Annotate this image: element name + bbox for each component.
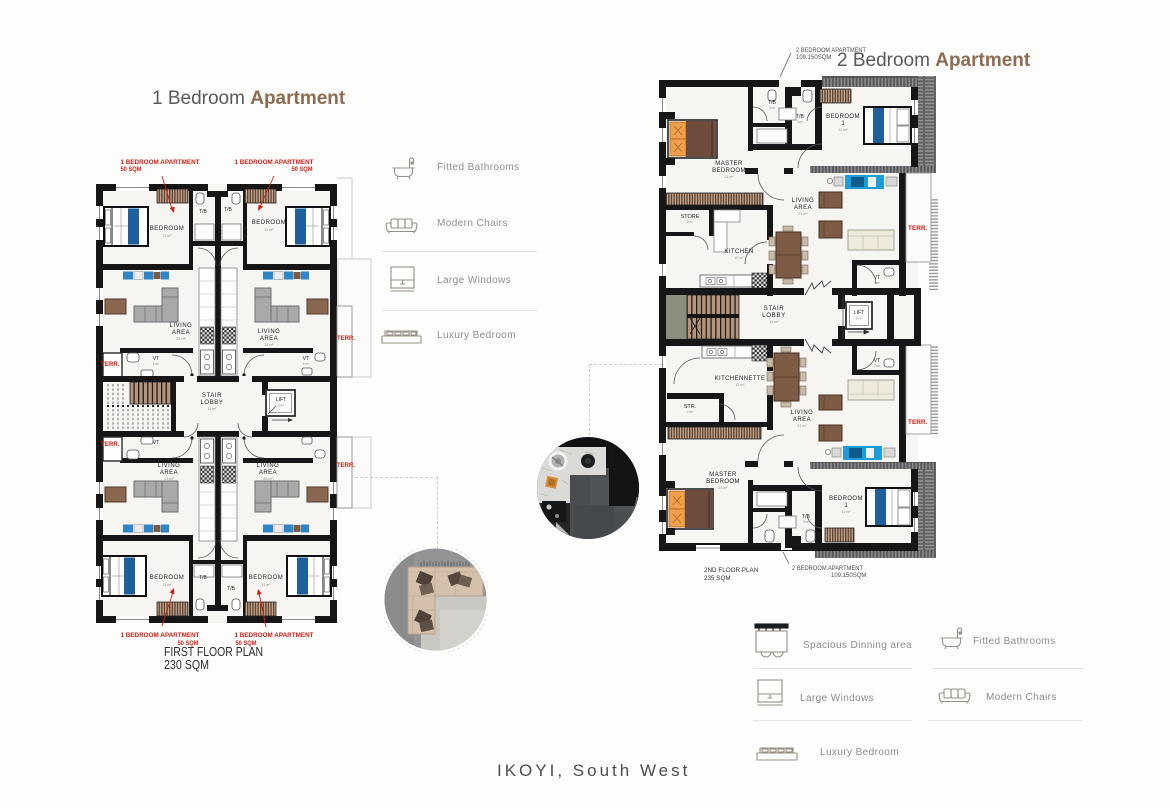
svg-text:VT: VT	[153, 440, 159, 446]
svg-text:LOBBY: LOBBY	[762, 312, 786, 319]
svg-text:23 m²: 23 m²	[164, 477, 174, 481]
svg-text:T/B: T/B	[199, 575, 207, 581]
svg-text:235 SQM: 235 SQM	[704, 575, 731, 582]
svg-text:TERR.: TERR.	[337, 463, 355, 469]
svg-text:230 SQM: 230 SQM	[164, 658, 209, 672]
svg-text:2 m²: 2 m²	[687, 220, 693, 224]
svg-text:BEDROOM: BEDROOM	[150, 575, 185, 581]
svg-text:AREA: AREA	[260, 336, 278, 342]
svg-text:BEDROOM: BEDROOM	[249, 575, 284, 581]
svg-text:LIVING: LIVING	[257, 463, 280, 469]
svg-text:13 m²: 13 m²	[735, 383, 745, 387]
svg-text:4 m²: 4 m²	[303, 362, 311, 366]
svg-text:2 m²: 2 m²	[687, 410, 693, 414]
svg-text:1 BEDROOM APARTMENT: 1 BEDROOM APARTMENT	[121, 633, 200, 639]
svg-text:11 m²: 11 m²	[208, 407, 218, 411]
svg-text:3 m²: 3 m²	[803, 520, 809, 524]
svg-text:TERR.: TERR.	[908, 419, 928, 426]
svg-text:11 m²: 11 m²	[163, 583, 173, 587]
svg-text:BEDROOM: BEDROOM	[826, 114, 860, 120]
svg-text:LIFT: LIFT	[854, 310, 864, 316]
svg-text:10 m²: 10 m²	[734, 256, 744, 260]
svg-text:50 SQM: 50 SQM	[292, 167, 313, 173]
svg-text:21 m²: 21 m²	[724, 175, 734, 179]
svg-text:3 m²: 3 m²	[874, 281, 880, 285]
svg-text:BEDROOM: BEDROOM	[829, 496, 863, 502]
svg-text:LIVING: LIVING	[791, 410, 814, 416]
svg-text:LIVING: LIVING	[792, 198, 815, 204]
svg-text:4 m²: 4 m²	[153, 362, 161, 366]
svg-text:T/B: T/B	[199, 209, 207, 215]
svg-text:11 m²: 11 m²	[262, 583, 272, 587]
svg-text:AREA: AREA	[172, 330, 190, 336]
svg-text:21 m²: 21 m²	[718, 486, 728, 490]
svg-text:LIVING: LIVING	[170, 323, 193, 329]
svg-text:LOBBY: LOBBY	[200, 400, 223, 406]
svg-text:STAIR: STAIR	[764, 305, 785, 312]
svg-text:3 m²: 3 m²	[856, 317, 862, 321]
svg-text:23 m²: 23 m²	[264, 343, 274, 347]
svg-text:AREA: AREA	[793, 417, 811, 423]
svg-text:11 m²: 11 m²	[770, 320, 780, 324]
svg-text:109.150SQM: 109.150SQM	[831, 573, 866, 579]
svg-text:BEDROOM: BEDROOM	[712, 168, 746, 174]
svg-text:23 m²: 23 m²	[176, 337, 186, 341]
svg-text:LIVING: LIVING	[158, 463, 181, 469]
svg-text:AREA: AREA	[160, 470, 178, 476]
svg-text:1 BEDROOM APARTMENT: 1 BEDROOM APARTMENT	[235, 160, 314, 166]
svg-text:TERR.: TERR.	[101, 441, 120, 448]
svg-text:2ND FLOOR PLAN: 2ND FLOOR PLAN	[704, 567, 759, 574]
svg-text:3 m²: 3 m²	[874, 364, 880, 368]
svg-text:3 m²: 3 m²	[797, 120, 803, 124]
svg-text:3 m²: 3 m²	[278, 404, 284, 408]
svg-text:AREA: AREA	[794, 205, 812, 211]
svg-text:MASTER: MASTER	[715, 161, 743, 167]
svg-text:KITCHENNETTE: KITCHENNETTE	[715, 376, 766, 382]
svg-text:3 m²: 3 m²	[769, 106, 775, 110]
svg-text:TERR.: TERR.	[101, 361, 120, 368]
svg-text:23 m²: 23 m²	[263, 477, 273, 481]
svg-text:11 m²: 11 m²	[839, 128, 849, 132]
svg-text:BEDROOM: BEDROOM	[252, 220, 287, 226]
svg-text:11 m²: 11 m²	[265, 228, 275, 232]
svg-text:TERR.: TERR.	[908, 225, 928, 232]
svg-text:AREA: AREA	[259, 470, 277, 476]
svg-text:KITCHEN: KITCHEN	[724, 249, 753, 255]
svg-text:21 m²: 21 m²	[798, 212, 808, 216]
svg-text:11 m²: 11 m²	[163, 234, 173, 238]
svg-text:FIRST FLOOR PLAN: FIRST FLOOR PLAN	[164, 645, 263, 659]
svg-text:11 m²: 11 m²	[842, 510, 852, 514]
svg-text:TERR.: TERR.	[337, 336, 355, 342]
svg-text:1 BEDROOM APARTMENT: 1 BEDROOM APARTMENT	[121, 160, 200, 166]
svg-text:2 BEDROOM APARTMENT: 2 BEDROOM APARTMENT	[792, 566, 863, 572]
svg-text:MASTER: MASTER	[709, 472, 737, 478]
svg-text:STAIR: STAIR	[202, 393, 222, 399]
svg-text:21 m²: 21 m²	[797, 424, 807, 428]
svg-text:1 BEDROOM APARTMENT: 1 BEDROOM APARTMENT	[235, 633, 314, 639]
svg-text:BEDROOM: BEDROOM	[150, 226, 185, 232]
svg-text:BEDROOM: BEDROOM	[706, 479, 740, 485]
svg-text:LIFT: LIFT	[276, 397, 286, 403]
svg-text:109.150SQM: 109.150SQM	[796, 55, 831, 61]
svg-text:LIVING: LIVING	[258, 329, 281, 335]
svg-text:T/B: T/B	[224, 207, 232, 213]
svg-text:50 SQM: 50 SQM	[121, 167, 142, 173]
svg-text:T/B: T/B	[227, 586, 235, 592]
